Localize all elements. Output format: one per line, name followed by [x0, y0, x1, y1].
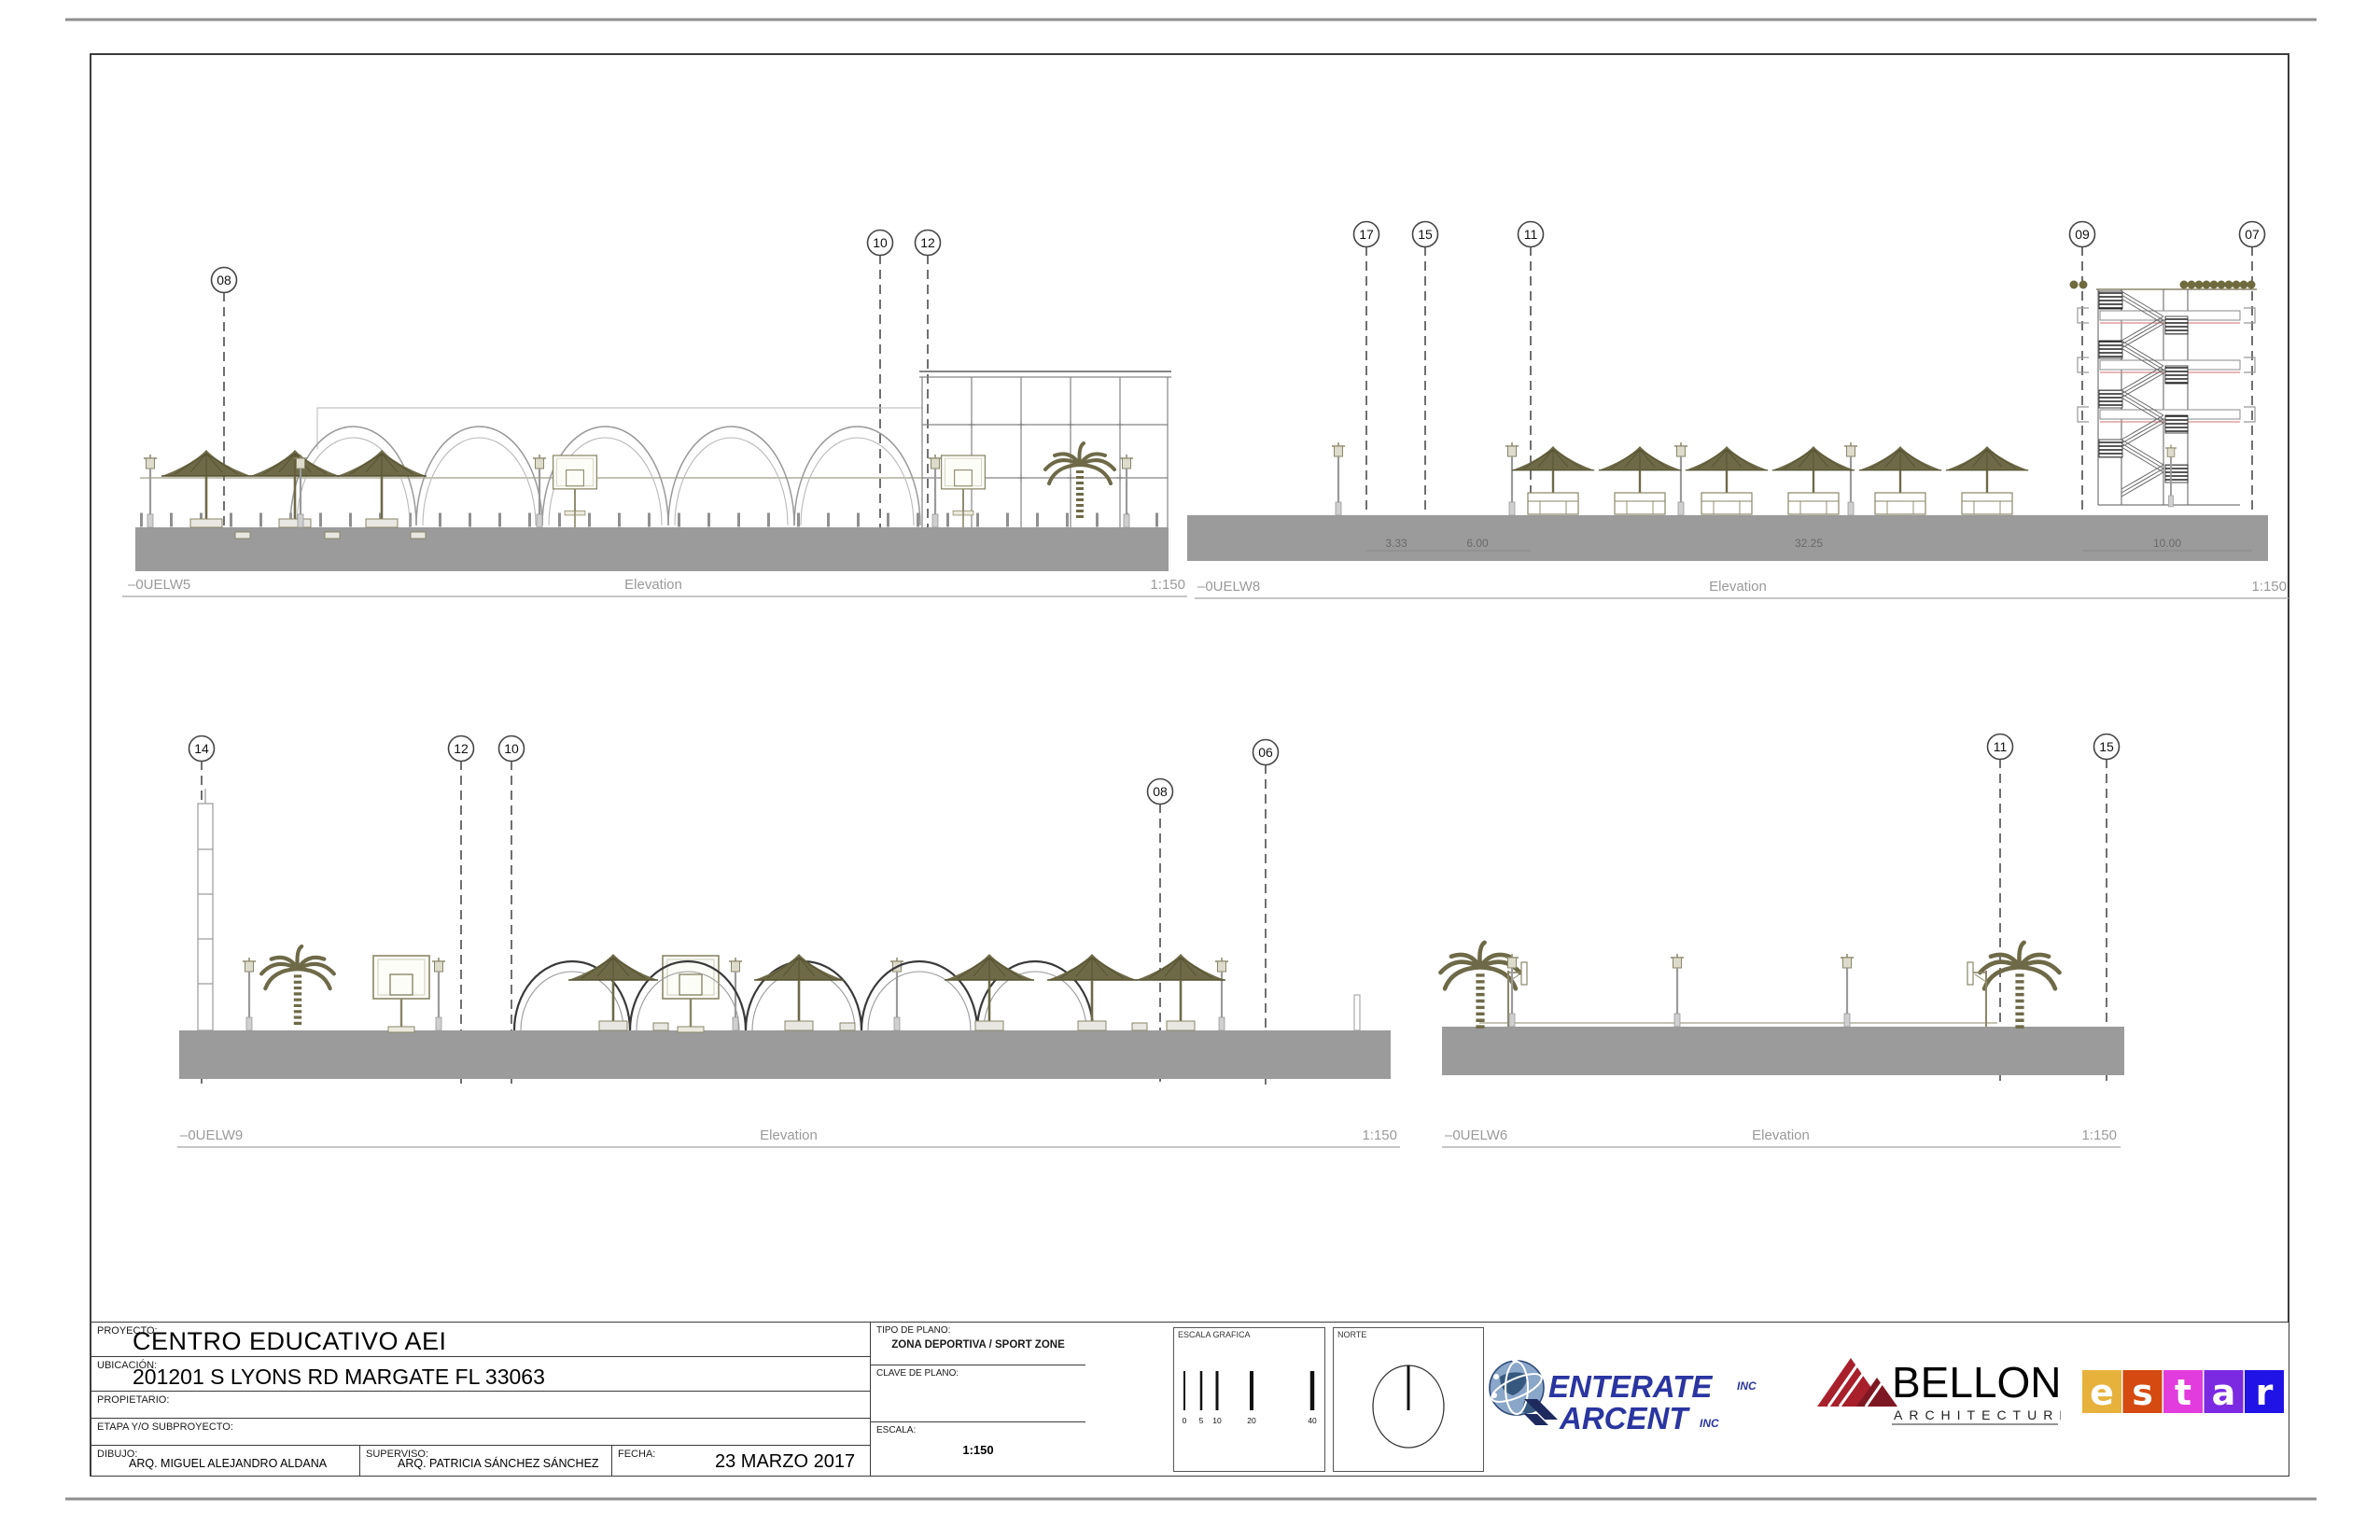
etapa-cell: ETAPA Y/O SUBPROYECTO: [91, 1418, 871, 1446]
escala-label: ESCALA: [876, 1425, 916, 1435]
dimension: 6.00 [1466, 537, 1489, 550]
view-code: –0UELW5 [128, 577, 190, 593]
view-code: –0UELW6 [1445, 1127, 1507, 1143]
view-title: Elevation [760, 1127, 818, 1143]
scale-tick: 20 [1247, 1416, 1256, 1425]
basketball-hoop-side [1967, 962, 1986, 1027]
bellon-roof-icon [1817, 1358, 1897, 1407]
grid-bubble-label: 07 [2245, 227, 2260, 242]
tipo-value: ZONA DEPORTIVA / SPORT ZONE [871, 1339, 1085, 1351]
grid-bubble-label: 09 [2075, 227, 2090, 242]
architecture-text: ARCHITECTURE [1894, 1407, 2061, 1422]
arcent-inc-text: INC [1700, 1417, 1719, 1430]
view-scale: 1:150 [2081, 1127, 2117, 1143]
scale-tick: 40 [1308, 1416, 1317, 1425]
logos-region: ESCALA GRAFICA 0 5 10 20 40 NORTE [1085, 1322, 2289, 1477]
view-title: Elevation [1709, 579, 1767, 595]
bellon-text: BELLON [1892, 1358, 2061, 1407]
dimension: 3.33 [1385, 537, 1407, 550]
stair-flights [2121, 291, 2163, 497]
ground-band [1187, 515, 2268, 561]
estar-letter: a [2212, 1372, 2236, 1413]
plan-sheet: 08 10 12 –0UELW5 Elevation 1:150 [0, 0, 2380, 1540]
dimension: 32.25 [1795, 537, 1823, 550]
norte-label: NORTE [1337, 1330, 1366, 1339]
dibujo-value: ARQ. MIGUEL ALEJANDRO ALDANA [129, 1457, 327, 1470]
elevation-0UELW5: 08 10 12 –0UELW5 Elevation 1:150 [122, 231, 1187, 597]
elevation-0UELW6: 11 15 –0UELW6 Elevation 1:150 [1440, 735, 2124, 1148]
enterate-arcent-logo: ENTERATE INC ARCENT INC [1487, 1343, 1813, 1460]
grid-bubbles [212, 231, 941, 293]
arcent-text: ARCENT [1559, 1401, 1690, 1435]
ground-band [1442, 1027, 2124, 1075]
bellon-logo: BELLON ARCHITECTURE [1813, 1349, 2061, 1442]
dibujo-cell: DIBUJO: ARQ. MIGUEL ALEJANDRO ALDANA [91, 1445, 360, 1477]
dimension: 10.00 [2153, 537, 2181, 550]
view-code: –0UELW8 [1197, 579, 1260, 595]
grid-bubble-label: 14 [194, 741, 209, 756]
grid-bubble-label: 17 [1359, 227, 1374, 242]
ground-band [135, 527, 1169, 571]
grid-bubble-label: 10 [504, 741, 519, 756]
propietario-label: PROPIETARIO: [97, 1394, 169, 1406]
stair-tower [2070, 281, 2258, 507]
superviso-cell: SUPERVISO: ARQ. PATRICIA SÁNCHEZ SÁNCHEZ [359, 1445, 612, 1477]
scale-tick: 10 [1212, 1416, 1222, 1425]
enterate-inc-text: INC [1737, 1379, 1757, 1393]
enterate-text: ENTERATE [1548, 1369, 1713, 1404]
scale-tick: 0 [1183, 1416, 1187, 1425]
sheet-border [91, 54, 2289, 1476]
tipo-cell: TIPO DE PLANO: ZONA DEPORTIVA / SPORT ZO… [870, 1322, 1086, 1365]
umbrella-row [1512, 446, 2028, 514]
grid-bubble-label: 11 [1994, 739, 2008, 754]
ubicacion-value: 201201 S LYONS RD MARGATE FL 33063 [133, 1365, 545, 1390]
estar-logo: e s t a r [2082, 1370, 2284, 1418]
estar-letter: t [2175, 1372, 2191, 1413]
grid-bubble-label: 11 [1524, 227, 1538, 242]
grid-bubble-label: 15 [1418, 227, 1433, 242]
etapa-label: ETAPA Y/O SUBPROYECTO: [97, 1421, 233, 1433]
grid-bubble-label: 12 [454, 741, 469, 756]
ubicacion-cell: UBICACIÓN: 201201 S LYONS RD MARGATE FL … [91, 1356, 871, 1392]
north-arrow [1334, 1328, 1482, 1468]
grid-bubbles [1354, 222, 2265, 247]
norte-box: NORTE [1333, 1327, 1484, 1472]
grid-bubbles [189, 736, 1279, 805]
light-mast [198, 789, 213, 1030]
sport-cage [919, 371, 1171, 527]
elevation-0UELW8: 3.33 6.00 32.25 10.00 17 15 11 09 07 –0U… [1187, 222, 2289, 599]
superviso-value: ARQ. PATRICIA SÁNCHEZ SÁNCHEZ [398, 1457, 599, 1470]
roof-shrubs [2070, 281, 2256, 289]
fecha-cell: FECHA: 23 MARZO 2017 [611, 1445, 871, 1477]
tipo-label: TIPO DE PLANO: [876, 1325, 950, 1336]
clave-cell: CLAVE DE PLANO: [870, 1365, 1086, 1422]
escala-value: 1:150 [871, 1443, 1085, 1457]
estar-letter: s [2132, 1372, 2153, 1413]
view-scale: 1:150 [2251, 579, 2287, 595]
fecha-value: 23 MARZO 2017 [715, 1451, 855, 1473]
grid-bubble-label: 06 [1258, 745, 1273, 760]
view-code: –0UELW9 [180, 1127, 243, 1143]
graphic-scale-bar: 0 5 10 20 40 [1174, 1328, 1323, 1468]
view-scale: 1:150 [1362, 1127, 1397, 1143]
proyecto-cell: PROYECTO: CENTRO EDUCATIVO AEI [91, 1322, 871, 1357]
propietario-cell: PROPIETARIO: [91, 1391, 871, 1419]
grid-bubble-label: 12 [920, 235, 935, 250]
estar-letter: r [2256, 1372, 2274, 1413]
elevations-drawing: 08 10 12 –0UELW5 Elevation 1:150 [0, 0, 2380, 1540]
clave-label: CLAVE DE PLANO: [876, 1368, 959, 1379]
view-scale: 1:150 [1150, 577, 1185, 593]
escala-cell: ESCALA: 1:150 [870, 1421, 1086, 1477]
grid-bubble-label: 10 [873, 235, 888, 250]
fecha-label: FECHA: [618, 1449, 655, 1460]
proyecto-value: CENTRO EDUCATIVO AEI [133, 1327, 447, 1356]
grid-bubble-label: 08 [217, 273, 231, 287]
ground-band [179, 1030, 1391, 1079]
scale-tick: 5 [1199, 1416, 1204, 1425]
elevation-0UELW9: 14 12 10 08 06 –0UELW9 Elevation 1:150 [177, 736, 1400, 1148]
grid-bubble-label: 15 [2099, 739, 2114, 754]
grid-bubble-label: 08 [1153, 784, 1168, 799]
view-title: Elevation [1752, 1127, 1810, 1143]
view-title: Elevation [624, 577, 682, 593]
escala-grafica-box: ESCALA GRAFICA 0 5 10 20 40 [1173, 1327, 1325, 1472]
escala-grafica-label: ESCALA GRAFICA [1178, 1330, 1251, 1339]
estar-letter: e [2090, 1372, 2114, 1413]
